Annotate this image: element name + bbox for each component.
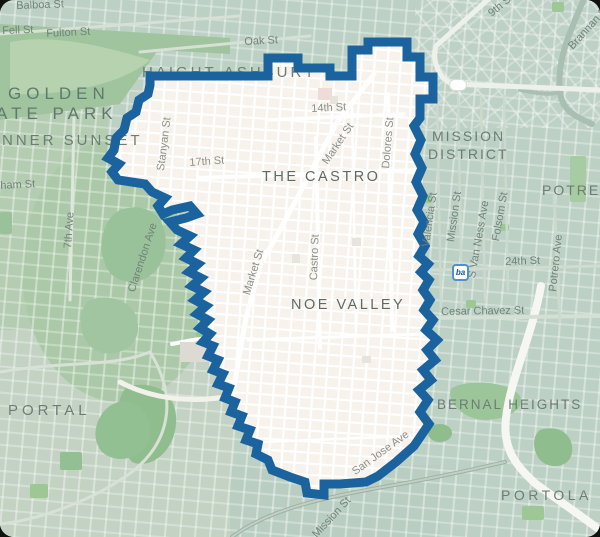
bart-station-icon: ba: [452, 264, 469, 281]
boundary-outline-path: [108, 42, 437, 495]
bart-logo-glyph: ba: [456, 269, 465, 277]
map-canvas[interactable]: HAIGHT-ASHBURYNNER SUNSETGOLDENATE PARKS…: [0, 0, 600, 537]
neighborhood-boundary-overlay: [0, 0, 600, 537]
